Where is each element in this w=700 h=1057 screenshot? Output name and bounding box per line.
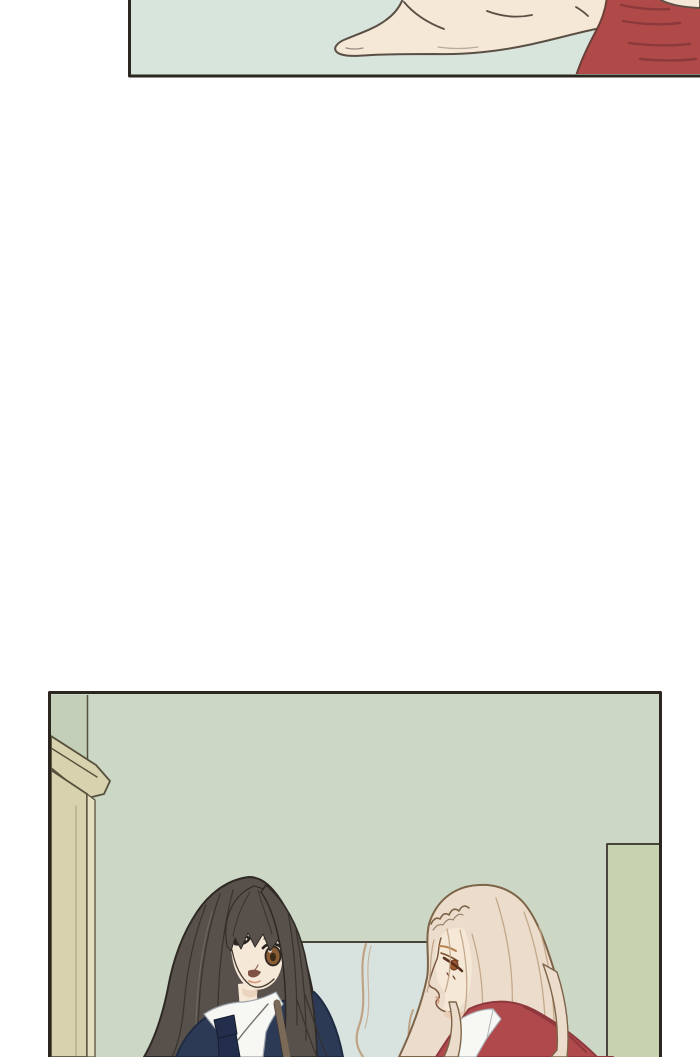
cabinet xyxy=(607,844,662,1057)
panel-1 xyxy=(130,0,700,76)
comic-artwork xyxy=(0,0,700,1057)
door-jamb xyxy=(87,794,95,1057)
dark-girl-right-pupil xyxy=(270,953,276,961)
comic-page xyxy=(0,0,700,1057)
door-slab xyxy=(51,770,87,1057)
dark-girl-tie xyxy=(218,1034,240,1057)
panel-2 xyxy=(50,693,663,1057)
